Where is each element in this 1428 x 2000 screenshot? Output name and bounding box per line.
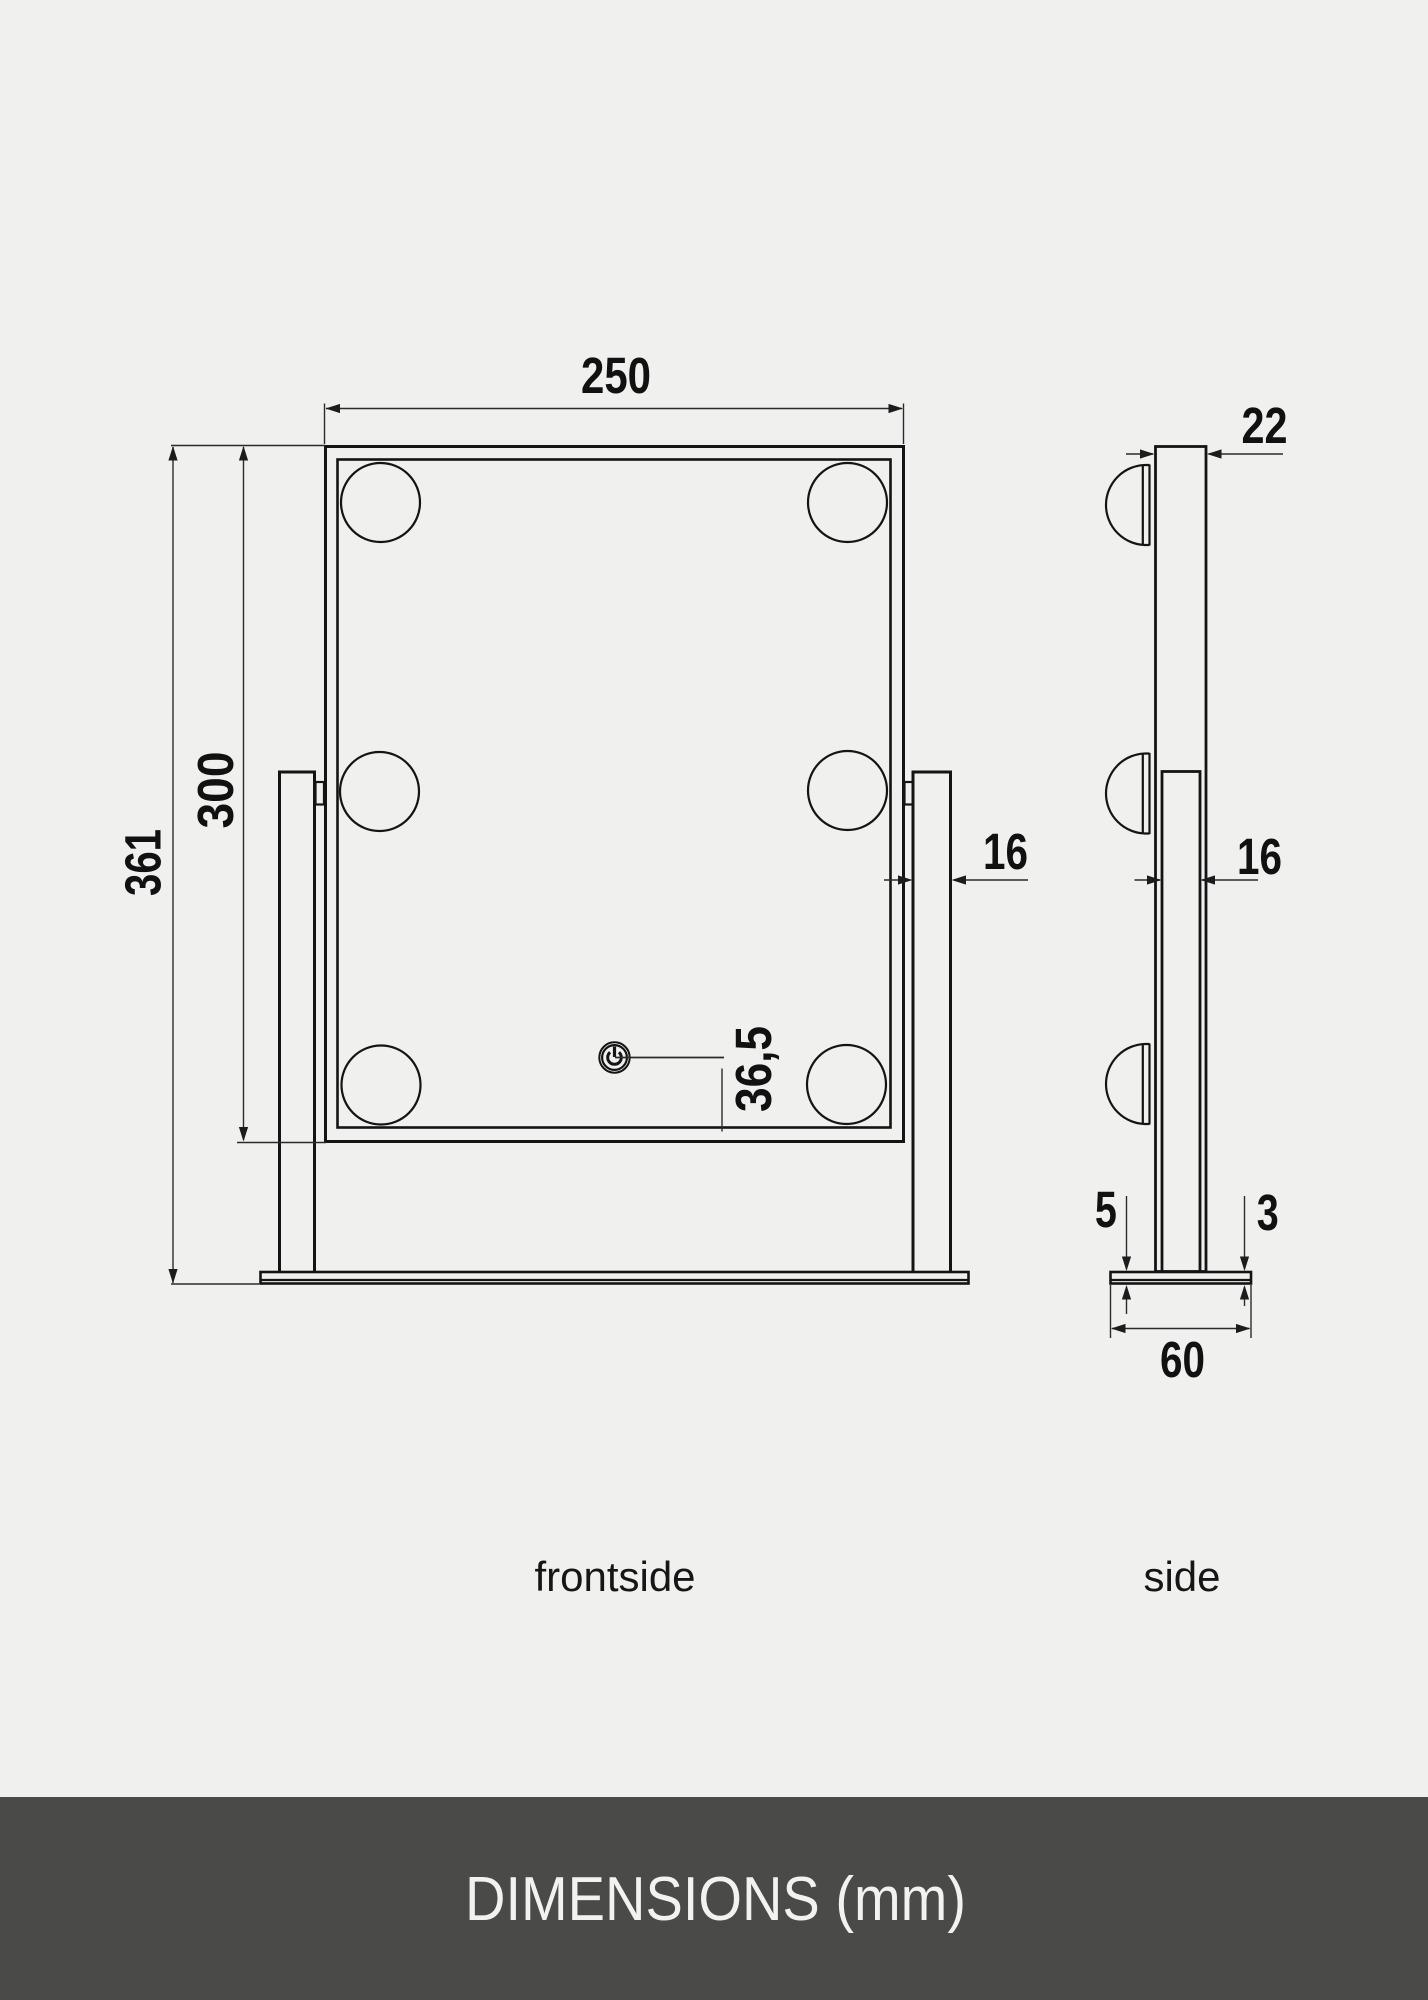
svg-text:60: 60 [1160, 1331, 1205, 1388]
svg-text:36,5: 36,5 [725, 1026, 782, 1112]
svg-text:3: 3 [1257, 1184, 1279, 1241]
svg-text:DIMENSIONS (mm): DIMENSIONS (mm) [465, 1865, 966, 1934]
svg-text:frontside: frontside [534, 1553, 695, 1600]
svg-text:side: side [1143, 1553, 1220, 1600]
svg-text:22: 22 [1242, 397, 1288, 454]
svg-text:300: 300 [187, 752, 244, 829]
svg-text:5: 5 [1095, 1181, 1117, 1238]
svg-text:16: 16 [1237, 828, 1282, 885]
svg-text:250: 250 [581, 347, 651, 404]
svg-text:361: 361 [115, 829, 172, 896]
svg-text:16: 16 [983, 823, 1028, 880]
